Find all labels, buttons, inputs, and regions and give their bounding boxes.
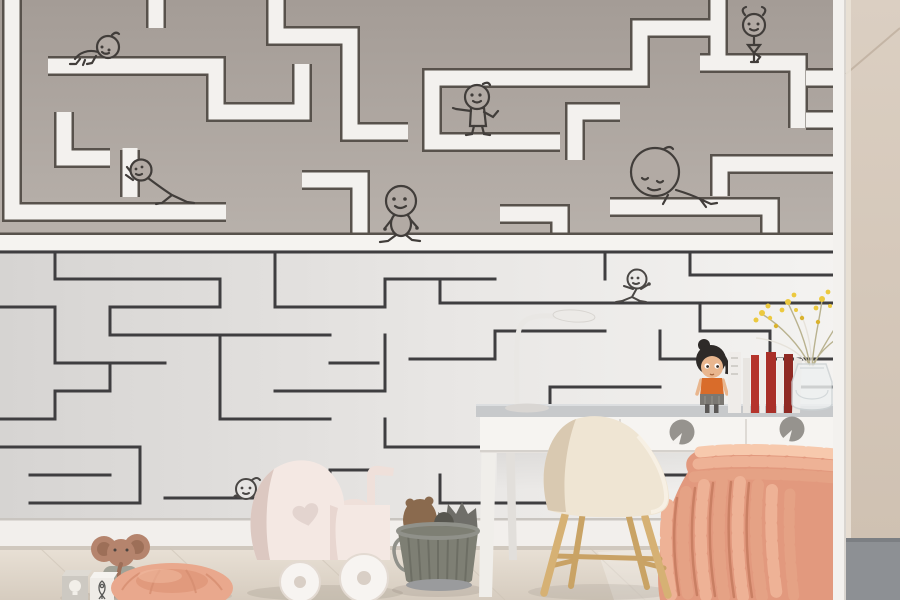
- lamp-base: [505, 404, 549, 413]
- bucket-base: [406, 579, 472, 591]
- doll-top: [700, 378, 724, 396]
- kids-room-photo: [0, 0, 900, 600]
- lightbulb-icon: [69, 580, 81, 592]
- desk-books: [728, 352, 802, 413]
- room-scene: [0, 0, 900, 600]
- wardrobe-panel: [846, 0, 900, 540]
- doll-leg: [714, 404, 719, 413]
- pram-seat: [330, 505, 390, 560]
- red-book: [751, 355, 759, 413]
- book: [777, 358, 783, 413]
- upper-maze-wall: [0, 0, 845, 250]
- knit-blanket: [658, 447, 858, 600]
- drawer-knob-left: [670, 420, 695, 445]
- drawer-knob-right: [780, 417, 805, 442]
- book: [760, 360, 765, 413]
- wardrobe-edge-highlight: [846, 0, 851, 540]
- doll-leg: [705, 404, 710, 413]
- wardrobe: [833, 0, 900, 600]
- wardrobe-plinth: [846, 538, 900, 600]
- plinth-shadow: [846, 538, 900, 542]
- glass-vase: [792, 364, 832, 410]
- white-binder: [728, 352, 741, 413]
- pouf-highlight: [138, 569, 182, 583]
- trim-edge: [844, 0, 846, 600]
- red-book: [766, 352, 776, 413]
- book: [743, 358, 750, 413]
- block-lightbulb: [62, 570, 92, 600]
